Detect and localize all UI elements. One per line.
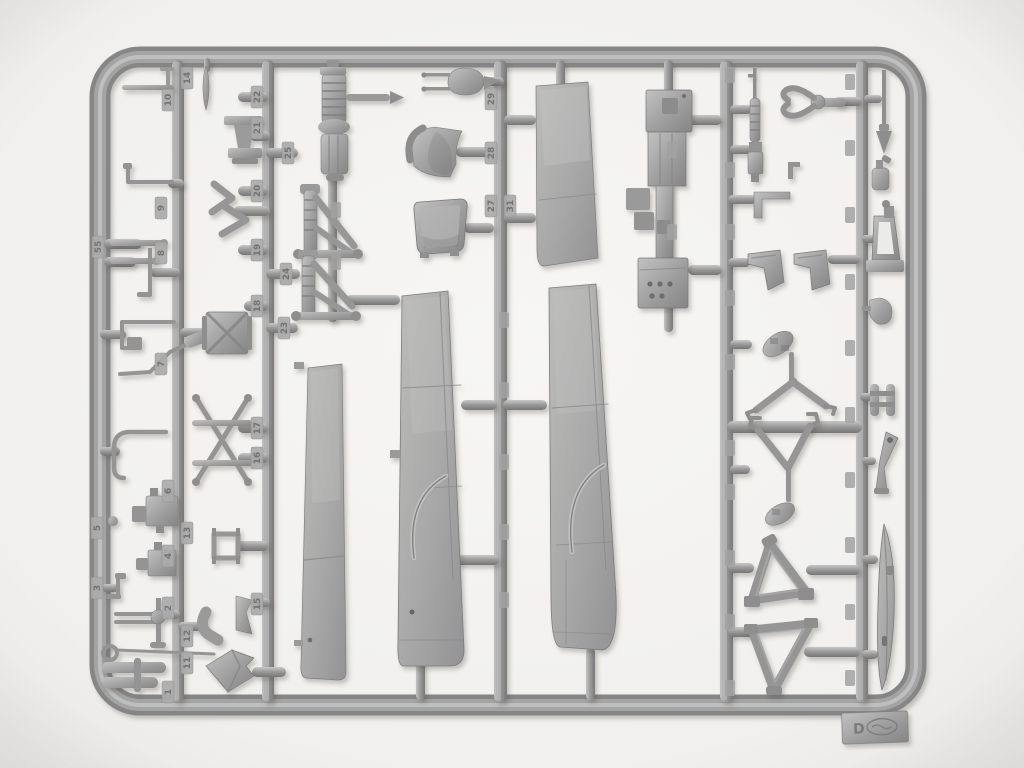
sprue-photo-scene: 1410222125209198241823717165529282731613… xyxy=(0,0,1024,768)
sprue-photo: 1410222125209198241823717165529282731613… xyxy=(0,0,1024,768)
vignette-overlay xyxy=(0,0,1024,768)
